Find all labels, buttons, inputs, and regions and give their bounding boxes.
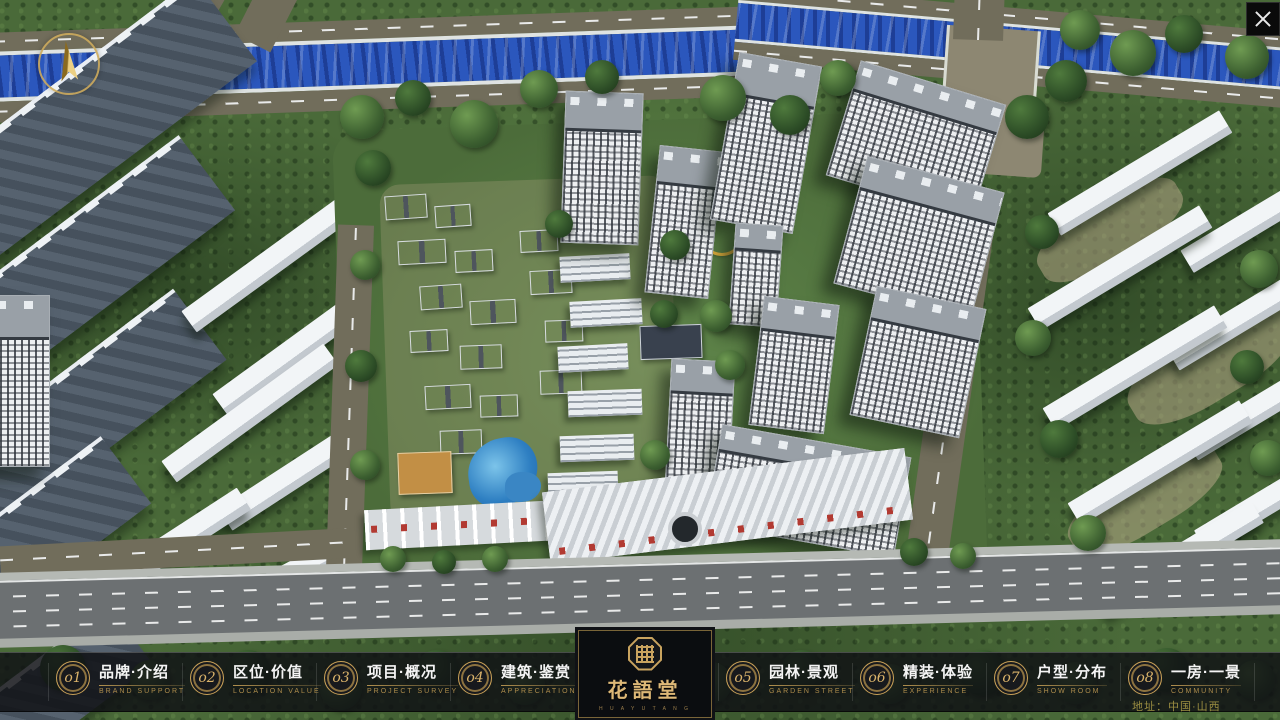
nav-sublabel: SHOW ROOM <box>1037 688 1107 695</box>
close-button[interactable] <box>1246 2 1280 36</box>
nav-sublabel: LOCATION VALUE <box>233 688 321 695</box>
project-logo[interactable]: 花語堂 H U A Y U T A N G <box>578 630 712 718</box>
courtyard-house <box>454 249 493 273</box>
nav-labels: 品牌·介绍 BRAND SUPPORT <box>99 661 185 695</box>
courtyard-house <box>409 329 448 353</box>
midrise-building <box>569 298 642 328</box>
logo-tagline: H U A Y U T A N G <box>599 706 691 712</box>
nav-item-landscape[interactable]: o5 园林·景观 GARDEN STREET <box>726 661 855 695</box>
tree <box>820 60 856 96</box>
courtyard-house <box>384 194 428 221</box>
tree <box>450 100 498 148</box>
nav-number-badge: o2 <box>190 661 224 695</box>
nav-number: o1 <box>64 670 81 686</box>
nav-divider <box>1120 663 1121 701</box>
logo-title: 花語堂 <box>608 674 683 703</box>
lane-marking <box>0 541 360 562</box>
nav-item-floorplan-distribution[interactable]: o7 户型·分布 SHOW ROOM <box>994 661 1107 695</box>
nav-labels: 建筑·鉴赏 APPRECIATION <box>501 661 577 695</box>
tree <box>1165 15 1203 53</box>
tree <box>700 75 746 121</box>
tree <box>1070 515 1106 551</box>
tower-roof <box>657 146 723 190</box>
courtyard-house <box>460 344 503 369</box>
nav-divider <box>718 663 719 701</box>
tower <box>0 295 50 467</box>
nav-number: o6 <box>868 670 885 686</box>
tree <box>1045 60 1087 102</box>
nav-label: 一房·一景 <box>1171 661 1241 682</box>
compass-icon <box>38 33 100 95</box>
nav-underline <box>501 685 577 686</box>
courtyard-house <box>469 299 516 325</box>
street-tree <box>482 546 508 572</box>
tree <box>715 350 745 380</box>
midrise-building <box>568 389 643 418</box>
nav-number-badge: o5 <box>726 661 760 695</box>
tree <box>1040 420 1078 458</box>
nav-number: o2 <box>198 670 215 686</box>
nav-divider <box>1254 663 1255 701</box>
red-signage-row <box>371 516 559 533</box>
nav-divider <box>986 663 987 701</box>
tree <box>1225 35 1269 79</box>
nav-label: 项目·概况 <box>367 661 458 682</box>
tree <box>545 210 573 238</box>
tree <box>1025 215 1059 249</box>
nav-underline <box>1171 685 1241 686</box>
sales-presentation-screen: o1 品牌·介绍 BRAND SUPPORT o2 区位·价值 LOCATION… <box>0 0 1280 720</box>
tree <box>520 70 558 108</box>
nav-sublabel: COMMUNITY <box>1171 688 1241 695</box>
north-road <box>953 0 1005 41</box>
nav-number-badge: o1 <box>56 661 90 695</box>
nav-label: 精装·体验 <box>903 661 973 682</box>
lane-marking <box>0 577 1280 614</box>
nav-sublabel: GARDEN STREET <box>769 688 855 695</box>
tree <box>585 60 619 94</box>
nav-item-brand-intro[interactable]: o1 品牌·介绍 BRAND SUPPORT <box>56 661 185 695</box>
nav-number-badge: o3 <box>324 661 358 695</box>
tree <box>340 95 384 139</box>
nav-label: 户型·分布 <box>1037 661 1107 682</box>
midrise-building <box>557 343 628 373</box>
nav-number: o7 <box>1002 670 1019 686</box>
clubhouse-hall <box>639 324 702 360</box>
nav-item-room-view[interactable]: o8 一房·一景 COMMUNITY <box>1128 661 1241 695</box>
tree <box>1230 350 1264 384</box>
nav-sublabel: PROJECT SURVEY <box>367 688 458 695</box>
tree <box>1250 440 1280 476</box>
courtyard-house <box>419 284 463 311</box>
nav-item-project-overview[interactable]: o3 项目·概况 PROJECT SURVEY <box>324 661 458 695</box>
nav-label: 园林·景观 <box>769 661 855 682</box>
tree <box>350 450 380 480</box>
nav-number-badge: o8 <box>1128 661 1162 695</box>
nav-number: o5 <box>734 670 751 686</box>
nav-number-badge: o4 <box>458 661 492 695</box>
midrise-building <box>560 434 635 463</box>
nav-number: o3 <box>332 670 349 686</box>
midrise-building <box>559 253 630 283</box>
project-address: 地址：中国·山西 <box>1132 698 1221 714</box>
tower-roof <box>735 224 783 254</box>
street-tree <box>900 538 928 566</box>
tree <box>355 150 391 186</box>
tree <box>1005 95 1049 139</box>
nav-item-location-value[interactable]: o2 区位·价值 LOCATION VALUE <box>190 661 321 695</box>
nav-label: 区位·价值 <box>233 661 321 682</box>
street-tree <box>432 550 456 574</box>
nav-labels: 项目·概况 PROJECT SURVEY <box>367 661 458 695</box>
tree <box>1110 30 1156 76</box>
tower-roof <box>761 297 839 339</box>
nav-underline <box>99 685 185 686</box>
nav-labels: 一房·一景 COMMUNITY <box>1171 661 1241 695</box>
nav-item-architecture[interactable]: o4 建筑·鉴赏 APPRECIATION <box>458 661 577 695</box>
amenity-building <box>397 451 452 495</box>
tree <box>395 80 431 116</box>
nav-label: 建筑·鉴赏 <box>501 661 577 682</box>
tree <box>640 440 670 470</box>
tree <box>700 300 732 332</box>
tree <box>1240 250 1278 288</box>
nav-divider <box>48 663 49 701</box>
tower-roof <box>0 296 49 340</box>
courtyard-house <box>480 394 519 417</box>
lane-marking <box>977 0 981 40</box>
entry-plaza-circle <box>668 512 702 546</box>
courtyard-house <box>424 384 471 410</box>
logo-seal-icon <box>628 637 662 671</box>
tree <box>770 95 810 135</box>
tree <box>350 250 380 280</box>
nav-item-interior-experience[interactable]: o6 精装·体验 EXPERIENCE <box>860 661 973 695</box>
courtyard-house <box>434 204 471 228</box>
nav-underline <box>367 685 458 686</box>
tower-roof <box>565 92 642 134</box>
tree <box>345 350 377 382</box>
nav-labels: 园林·景观 GARDEN STREET <box>769 661 855 695</box>
nav-sublabel: APPRECIATION <box>501 688 577 695</box>
nav-labels: 户型·分布 SHOW ROOM <box>1037 661 1107 695</box>
nav-labels: 区位·价值 LOCATION VALUE <box>233 661 321 695</box>
nav-label: 品牌·介绍 <box>99 661 185 682</box>
nav-underline <box>1037 685 1107 686</box>
nav-labels: 精装·体验 EXPERIENCE <box>903 661 973 695</box>
tree <box>1060 10 1100 50</box>
street-tree <box>380 546 406 572</box>
compass-needle-icon <box>52 40 84 87</box>
nav-underline <box>233 685 321 686</box>
tree <box>1015 320 1051 356</box>
nav-number: o8 <box>1136 670 1153 686</box>
nav-underline <box>769 685 855 686</box>
nav-sublabel: EXPERIENCE <box>903 688 973 695</box>
tree <box>660 230 690 260</box>
nav-number-badge: o6 <box>860 661 894 695</box>
nav-sublabel: BRAND SUPPORT <box>99 688 185 695</box>
tree <box>650 300 678 328</box>
nav-number-badge: o7 <box>994 661 1028 695</box>
nav-number: o4 <box>466 670 483 686</box>
courtyard-house <box>397 239 446 265</box>
street-tree <box>950 543 976 569</box>
tower <box>748 296 839 434</box>
nav-underline <box>903 685 973 686</box>
